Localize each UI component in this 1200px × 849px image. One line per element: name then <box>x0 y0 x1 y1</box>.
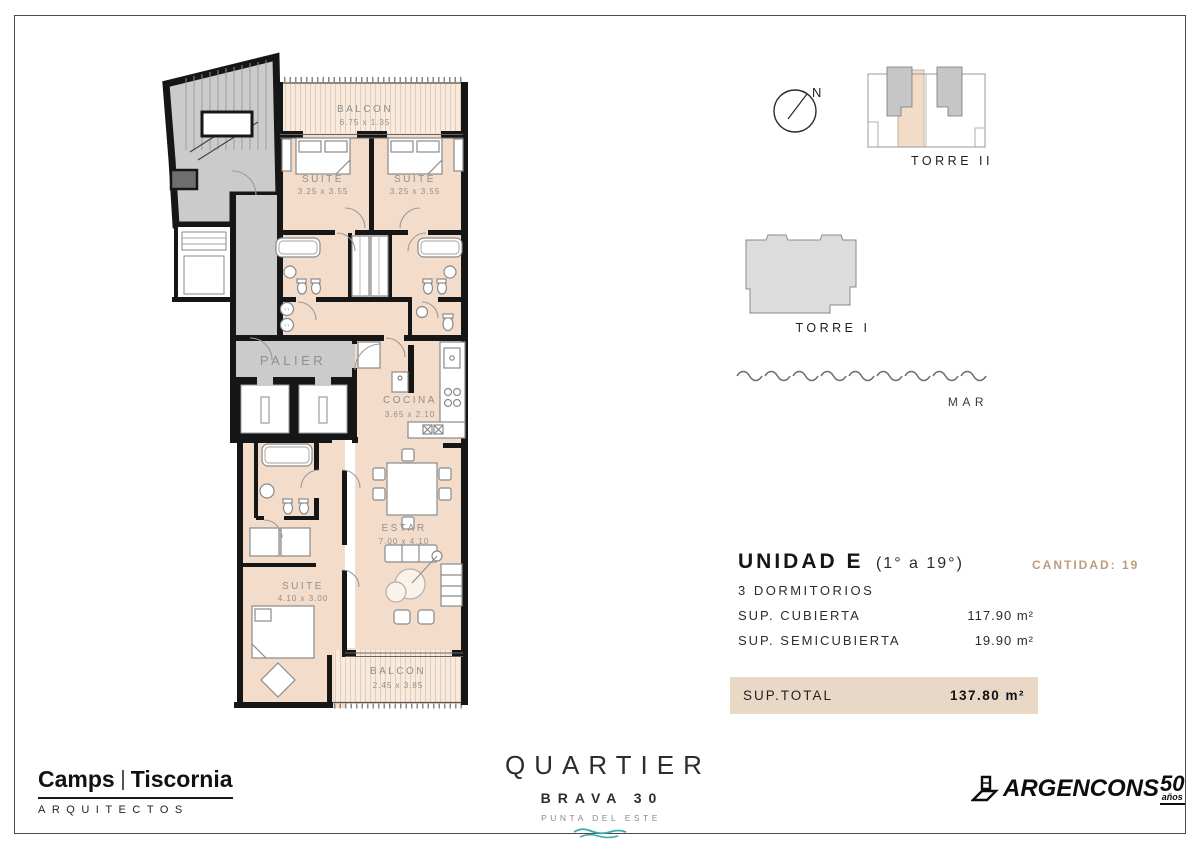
architects-logo: Camps Tiscornia ARQUITECTOS <box>38 766 233 816</box>
room-dims-cocina: 3.65 x 2.10 <box>385 410 436 419</box>
developer-years: 50 <box>1160 775 1184 793</box>
area-row-cubierta: SUP. CUBIERTA 117.90 m² <box>738 608 1034 623</box>
suite-3-bed <box>252 606 314 658</box>
closet <box>454 139 463 171</box>
shaft <box>171 170 197 189</box>
north-label: N <box>812 85 821 100</box>
room-label-suite-2: SUITE <box>394 174 436 185</box>
brand-project: BRAVA 30 <box>504 790 700 806</box>
area-value: 117.90 m² <box>967 608 1034 623</box>
elevators <box>230 376 355 440</box>
room-label-suite-1: SUITE <box>302 174 344 185</box>
torre-i-map: TORRE I <box>746 235 870 335</box>
room-label-balcon-top: BALCON <box>337 104 393 115</box>
unit-floor-range: (1° a 19°) <box>876 555 964 572</box>
total-area-bar: SUP.TOTAL 137.80 m² <box>730 677 1038 714</box>
closet <box>281 528 310 556</box>
brand-name: QUARTIER <box>505 750 700 781</box>
unit-quantity-badge: CANTIDAD: 19 <box>1032 558 1139 572</box>
sea-label: MAR <box>948 395 988 409</box>
room-label-suite-3: SUITE <box>282 581 324 592</box>
floor-plan-canvas: BALCON 6.75 x 1.35 SUITE 3.25 x 3.55 SUI… <box>0 0 1200 849</box>
compass-icon: N <box>774 85 821 132</box>
area-value: 19.90 m² <box>975 633 1034 648</box>
brand-waves-icon <box>500 827 700 846</box>
suite-2-bed <box>388 138 442 174</box>
closet <box>282 139 291 171</box>
developer-building-icon <box>971 775 999 808</box>
developer-anniversary: 50 años <box>1160 775 1184 805</box>
torre-ii-label: TORRE II <box>911 154 993 168</box>
suite-1-bed <box>296 138 350 174</box>
unit-info: UNIDAD E (1° a 19°) 3 DORMITORIOS SUP. C… <box>738 550 1038 648</box>
room-label-palier: PALIER <box>260 353 326 368</box>
laundry-label: TT <box>284 307 290 312</box>
sea-waves <box>737 372 986 381</box>
stair-landing <box>202 112 252 136</box>
room-dims-suite-1: 3.25 x 3.55 <box>298 187 349 196</box>
architect-name-left: Camps <box>38 766 115 793</box>
developer-logo: ARGENCONS 50 años <box>971 775 1185 808</box>
logo-divider <box>122 770 124 790</box>
area-label: SUP. CUBIERTA <box>738 608 861 623</box>
room-label-estar: ESTAR <box>381 523 426 534</box>
room-dims-balcon-bottom: 2.45 x 3.85 <box>373 681 424 690</box>
architect-name-right: Tiscornia <box>131 766 233 793</box>
area-row-semicubierta: SUP. SEMICUBIERTA 19.90 m² <box>738 633 1034 648</box>
room-dims-balcon-top: 6.75 x 1.35 <box>340 118 391 127</box>
closet <box>250 528 279 556</box>
torre-ii-map: TORRE II <box>868 67 993 168</box>
floor-plan: BALCON 6.75 x 1.35 SUITE 3.25 x 3.55 SUI… <box>166 57 468 708</box>
brand-logo: QUARTIER BRAVA 30 PUNTA DEL ESTE <box>500 750 700 846</box>
vestibule <box>233 195 280 338</box>
brochure-page: BALCON 6.75 x 1.35 SUITE 3.25 x 3.55 SUI… <box>0 0 1200 849</box>
brand-location: PUNTA DEL ESTE <box>502 813 700 823</box>
unit-bedrooms: 3 DORMITORIOS <box>738 583 1038 598</box>
architects-subtitle: ARQUITECTOS <box>38 804 233 816</box>
area-label: SUP. SEMICUBIERTA <box>738 633 901 648</box>
room-dims-suite-3: 4.10 x 3.00 <box>278 594 329 603</box>
site-map: N TORRE II TORRE I <box>737 67 993 409</box>
room-dims-suite-2: 3.25 x 3.55 <box>390 187 441 196</box>
machine-room <box>176 225 233 300</box>
torre-i-label: TORRE I <box>796 321 871 335</box>
developer-years-suffix: años <box>1160 793 1184 802</box>
total-value: 137.80 m² <box>950 688 1025 703</box>
unit-title: UNIDAD E <box>738 550 864 573</box>
room-dims-estar: 7.00 x 4.10 <box>379 537 430 546</box>
room-label-balcon-bottom: BALCON <box>370 666 426 677</box>
room-label-cocina: COCINA <box>383 395 437 406</box>
developer-name: ARGENCONS <box>1003 775 1159 803</box>
laundry-label: TT <box>284 323 290 328</box>
total-label: SUP.TOTAL <box>743 688 833 703</box>
